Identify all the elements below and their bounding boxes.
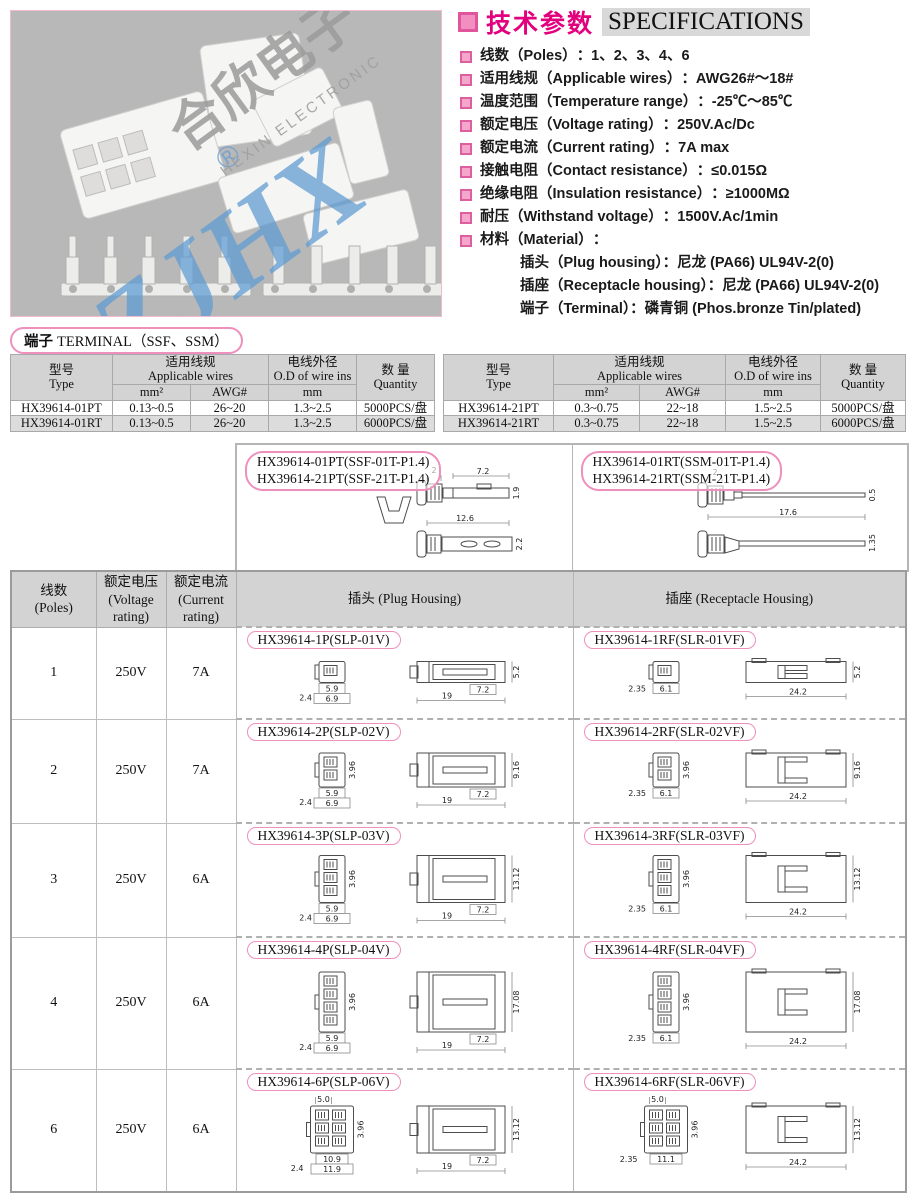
plug-technical-drawing: 5.96.92.43.967.21913.12 bbox=[237, 847, 569, 935]
receptacle-technical-drawing: 6.12.353.9624.29.16 bbox=[574, 743, 902, 821]
col-header-wires: 适用线规Applicable wires bbox=[113, 355, 269, 385]
receptacle-cell: HX39614-3RF(SLR-03VF)6.12.353.9624.213.1… bbox=[573, 823, 906, 937]
spec-item: 温度范围（Temperature range）：-25℃～85℃ bbox=[458, 92, 910, 113]
svg-text:6.9: 6.9 bbox=[325, 915, 338, 924]
spec-item-value: ：1500V.Ac/1min bbox=[663, 207, 779, 228]
specifications-list: 线数（Poles）：1、2、3、4、6适用线规（Applicable wires… bbox=[458, 46, 910, 320]
voltage-value: 250V bbox=[96, 937, 166, 1069]
terminal-cell: 1.3~2.5 bbox=[269, 400, 357, 415]
current-value: 6A bbox=[166, 937, 236, 1069]
terminal-drawings-box: HX39614-01PT(SSF-01T-P1.4) HX39614-21PT(… bbox=[235, 443, 909, 572]
svg-text:7.2: 7.2 bbox=[476, 686, 489, 695]
svg-text:2.35: 2.35 bbox=[628, 1034, 646, 1043]
spec-material-subline: 端子（Terminal）：磷青铜 (Phos.bronze Tin/plated… bbox=[458, 299, 910, 320]
svg-text:2.35: 2.35 bbox=[619, 1155, 637, 1164]
poles-value: 6 bbox=[11, 1069, 96, 1192]
spec-item: 额定电压（Voltage rating）：250V.Ac/Dc bbox=[458, 115, 910, 136]
svg-text:2.4: 2.4 bbox=[299, 914, 312, 923]
svg-text:1.9: 1.9 bbox=[512, 487, 521, 500]
spec-item-value: ：AWG26#～18# bbox=[681, 69, 793, 90]
receptacle-cell: HX39614-1RF(SLR-01VF)6.12.3524.25.2 bbox=[573, 627, 906, 719]
spec-material-subline: 插头（Plug housing）：尼龙 (PA66) UL94V-2(0) bbox=[458, 253, 910, 274]
receptacle-part-label: HX39614-4RF(SLR-04VF) bbox=[584, 941, 756, 959]
spec-item-value: ：7A max bbox=[664, 138, 730, 159]
spec-item-text: 绝缘电阻（Insulation resistance） bbox=[480, 184, 711, 205]
terminal-cell: HX39614-01RT bbox=[11, 416, 113, 431]
plug-part-label: HX39614-1P(SLP-01V) bbox=[247, 631, 401, 649]
svg-text:13.12: 13.12 bbox=[512, 868, 521, 891]
spec-item-value: ：-25℃～85℃ bbox=[697, 92, 792, 113]
terminal-table-right: 型号Type 适用线规Applicable wires 电线外径O.D of w… bbox=[443, 354, 906, 432]
svg-text:2.35: 2.35 bbox=[628, 905, 646, 914]
spec-item-text: 适用线规（Applicable wires） bbox=[480, 69, 681, 90]
poles-value: 1 bbox=[11, 627, 96, 719]
terminal-cell: HX39614-01PT bbox=[11, 400, 113, 415]
terminal-table-row: HX39614-01RT0.13~0.526~201.3~2.56000PCS/… bbox=[11, 416, 435, 431]
housing-table-row: 4250V6AHX39614-4P(SLP-04V)5.96.92.43.967… bbox=[11, 937, 906, 1069]
terminal-drawing-ssm: HX39614-01RT(SSM-01T-P1.4) HX39614-21RT(… bbox=[572, 445, 908, 572]
col-header-type: 型号Type bbox=[11, 355, 113, 401]
plug-cell: HX39614-6P(SLP-06V)10.911.92.43.965.07.2… bbox=[236, 1069, 573, 1192]
svg-text:24.2: 24.2 bbox=[789, 908, 807, 917]
svg-text:2.4: 2.4 bbox=[299, 798, 312, 807]
col-header-awg: AWG# bbox=[191, 384, 269, 400]
terminal-cell: 0.13~0.5 bbox=[113, 400, 191, 415]
spec-item-text: 温度范围（Temperature range） bbox=[480, 92, 697, 113]
header-receptacle: 插座 (Receptacle Housing) bbox=[573, 571, 906, 627]
svg-text:7.2: 7.2 bbox=[476, 790, 489, 799]
plug-cell: HX39614-1P(SLP-01V)5.96.92.47.2195.2 bbox=[236, 627, 573, 719]
receptacle-part-label: HX39614-3RF(SLR-03VF) bbox=[584, 827, 756, 845]
plug-technical-drawing: 10.911.92.43.965.07.21913.12 bbox=[237, 1093, 569, 1190]
svg-text:1.35: 1.35 bbox=[868, 534, 877, 552]
svg-text:7.2: 7.2 bbox=[476, 906, 489, 915]
svg-text:3.96: 3.96 bbox=[348, 761, 357, 779]
svg-text:6.1: 6.1 bbox=[659, 905, 672, 914]
spec-item: 线数（Poles）：1、2、3、4、6 bbox=[458, 46, 910, 67]
svg-text:3.96: 3.96 bbox=[682, 761, 691, 779]
svg-text:3.96: 3.96 bbox=[682, 870, 691, 888]
receptacle-technical-drawing: 6.12.353.9624.217.08 bbox=[574, 961, 902, 1067]
svg-text:2.4: 2.4 bbox=[299, 694, 312, 703]
svg-text:5.9: 5.9 bbox=[325, 1034, 338, 1043]
specifications-title-en: SPECIFICATIONS bbox=[602, 8, 810, 37]
terminal-label-en: TERMINAL（SSF、SSM） bbox=[57, 334, 229, 350]
svg-text:2.4: 2.4 bbox=[299, 1043, 312, 1052]
spec-item-value: ：≥1000MΩ bbox=[711, 184, 789, 205]
svg-text:3.96: 3.96 bbox=[348, 870, 357, 888]
terminal-cell: 0.3~0.75 bbox=[554, 400, 640, 415]
square-bullet-icon bbox=[460, 74, 472, 86]
voltage-value: 250V bbox=[96, 719, 166, 823]
receptacle-cell: HX39614-6RF(SLR-06VF)11.12.353.965.024.2… bbox=[573, 1069, 906, 1192]
plug-technical-drawing: 5.96.92.43.967.2199.16 bbox=[237, 743, 569, 821]
housing-table-row: 2250V7AHX39614-2P(SLP-02V)5.96.92.43.967… bbox=[11, 719, 906, 823]
plug-technical-drawing: 5.96.92.47.2195.2 bbox=[237, 651, 569, 717]
header-current: 额定电流(Current rating) bbox=[166, 571, 236, 627]
svg-text:7.2: 7.2 bbox=[477, 467, 490, 476]
svg-text:2.4: 2.4 bbox=[290, 1164, 303, 1173]
receptacle-part-label: HX39614-6RF(SLR-06VF) bbox=[584, 1073, 756, 1091]
plug-cell: HX39614-4P(SLP-04V)5.96.92.43.967.21917.… bbox=[236, 937, 573, 1069]
housing-table-row: 6250V6AHX39614-6P(SLP-06V)10.911.92.43.9… bbox=[11, 1069, 906, 1192]
svg-text:5.9: 5.9 bbox=[325, 685, 338, 694]
current-value: 6A bbox=[166, 823, 236, 937]
col-header-mm2: mm² bbox=[113, 384, 191, 400]
square-bullet-icon bbox=[460, 143, 472, 155]
receptacle-cell: HX39614-4RF(SLR-04VF)6.12.353.9624.217.0… bbox=[573, 937, 906, 1069]
square-bullet-icon bbox=[460, 97, 472, 109]
terminal-cell: HX39614-21PT bbox=[444, 400, 554, 415]
svg-text:17.08: 17.08 bbox=[853, 991, 862, 1014]
terminal-table-row: HX39614-21PT0.3~0.7522~181.5~2.55000PCS/… bbox=[444, 400, 906, 415]
part-label-ssm: HX39614-01RT(SSM-01T-P1.4) HX39614-21RT(… bbox=[581, 451, 783, 491]
receptacle-technical-drawing: 6.12.353.9624.213.12 bbox=[574, 847, 902, 935]
svg-text:3.96: 3.96 bbox=[682, 993, 691, 1011]
terminal-cell: 26~20 bbox=[191, 400, 269, 415]
svg-text:6.9: 6.9 bbox=[325, 1044, 338, 1053]
svg-text:9.16: 9.16 bbox=[512, 761, 521, 779]
product-photo-illustration: ZJHX ® 合欣电子 HEXIN ELECTRONIC bbox=[11, 11, 441, 316]
receptacle-technical-drawing: 6.12.3524.25.2 bbox=[574, 651, 902, 717]
terminal-table-row: HX39614-01PT0.13~0.526~201.3~2.55000PCS/… bbox=[11, 400, 435, 415]
svg-text:19: 19 bbox=[441, 1162, 451, 1171]
spec-subline-text: 端子（Terminal）：磷青铜 (Phos.bronze Tin/plated… bbox=[520, 299, 861, 320]
svg-text:13.12: 13.12 bbox=[853, 868, 862, 891]
col-header-mm2: mm² bbox=[554, 384, 640, 400]
svg-text:3.96: 3.96 bbox=[690, 1121, 699, 1139]
col-header-awg: AWG# bbox=[640, 384, 726, 400]
svg-text:24.2: 24.2 bbox=[789, 1037, 807, 1046]
spec-item-value: ： bbox=[593, 230, 608, 251]
square-bullet-icon bbox=[460, 189, 472, 201]
terminal-cell: 0.13~0.5 bbox=[113, 416, 191, 431]
terminal-cell: 1.5~2.5 bbox=[726, 400, 821, 415]
plug-part-label: HX39614-4P(SLP-04V) bbox=[247, 941, 401, 959]
plug-cell: HX39614-2P(SLP-02V)5.96.92.43.967.2199.1… bbox=[236, 719, 573, 823]
svg-text:7.2: 7.2 bbox=[476, 1035, 489, 1044]
spec-item: 耐压（Withstand voltage）：1500V.Ac/1min bbox=[458, 207, 910, 228]
title-square-icon bbox=[458, 12, 478, 32]
current-value: 6A bbox=[166, 1069, 236, 1192]
svg-text:10.9: 10.9 bbox=[323, 1155, 341, 1164]
svg-text:5.9: 5.9 bbox=[325, 789, 338, 798]
svg-text:6.9: 6.9 bbox=[325, 695, 338, 704]
svg-text:13.12: 13.12 bbox=[853, 1118, 862, 1141]
spec-subline-text: 插座（Receptacle housing）：尼龙 (PA66) UL94V-2… bbox=[520, 276, 879, 297]
header-poles: 线数(Poles) bbox=[11, 571, 96, 627]
poles-value: 4 bbox=[11, 937, 96, 1069]
svg-text:11.1: 11.1 bbox=[657, 1155, 675, 1164]
col-header-od: 电线外径O.D of wire ins bbox=[269, 355, 357, 385]
plug-part-label: HX39614-3P(SLP-03V) bbox=[247, 827, 401, 845]
datasheet-page: ZJHX ® 合欣电子 HEXIN ELECTRONIC 技术参数 SPECIF… bbox=[0, 0, 915, 1194]
spec-item-value: ：1、2、3、4、6 bbox=[577, 46, 690, 67]
svg-text:24.2: 24.2 bbox=[789, 1158, 807, 1167]
svg-text:6.1: 6.1 bbox=[659, 1034, 672, 1043]
header-voltage: 额定电压(Voltage rating) bbox=[96, 571, 166, 627]
svg-text:5.9: 5.9 bbox=[325, 905, 338, 914]
receptacle-cell: HX39614-2RF(SLR-02VF)6.12.353.9624.29.16 bbox=[573, 719, 906, 823]
spec-item-text: 耐压（Withstand voltage） bbox=[480, 207, 663, 228]
col-header-type: 型号Type bbox=[444, 355, 554, 401]
svg-text:17.6: 17.6 bbox=[779, 508, 797, 517]
svg-text:9.16: 9.16 bbox=[853, 761, 862, 779]
product-photo: ZJHX ® 合欣电子 HEXIN ELECTRONIC bbox=[10, 10, 442, 317]
svg-text:5.0: 5.0 bbox=[651, 1095, 664, 1104]
receptacle-technical-drawing: 11.12.353.965.024.213.12 bbox=[574, 1093, 902, 1190]
svg-text:6.1: 6.1 bbox=[659, 789, 672, 798]
spec-subline-text: 插头（Plug housing）：尼龙 (PA66) UL94V-2(0) bbox=[520, 253, 834, 274]
square-bullet-icon bbox=[460, 235, 472, 247]
terminal-section-label: 端子 TERMINAL（SSF、SSM） bbox=[10, 327, 243, 354]
receptacle-part-label: HX39614-1RF(SLR-01VF) bbox=[584, 631, 756, 649]
plug-cell: HX39614-3P(SLP-03V)5.96.92.43.967.21913.… bbox=[236, 823, 573, 937]
terminal-table-left: 型号Type 适用线规Applicable wires 电线外径O.D of w… bbox=[10, 354, 435, 432]
spec-item: 额定电流（Current rating）：7A max bbox=[458, 138, 910, 159]
terminal-cell: 26~20 bbox=[191, 416, 269, 431]
terminal-drawing-ssf: HX39614-01PT(SSF-01T-P1.4) HX39614-21PT(… bbox=[237, 445, 572, 572]
terminal-table-row: HX39614-21RT0.3~0.7522~181.5~2.56000PCS/… bbox=[444, 416, 906, 431]
spec-item-text: 接触电阻（Contact resistance） bbox=[480, 161, 697, 182]
terminal-cell: 22~18 bbox=[640, 400, 726, 415]
col-header-od-unit: mm bbox=[726, 384, 821, 400]
square-bullet-icon bbox=[460, 120, 472, 132]
terminal-cell: 0.3~0.75 bbox=[554, 416, 640, 431]
svg-text:12.6: 12.6 bbox=[456, 514, 474, 523]
plug-part-label: HX39614-6P(SLP-06V) bbox=[247, 1073, 401, 1091]
spec-item-text: 材料（Material） bbox=[480, 230, 593, 251]
spec-item: 绝缘电阻（Insulation resistance）：≥1000MΩ bbox=[458, 184, 910, 205]
housing-table-row: 1250V7AHX39614-1P(SLP-01V)5.96.92.47.219… bbox=[11, 627, 906, 719]
svg-text:11.9: 11.9 bbox=[323, 1165, 341, 1174]
terminal-cell: 6000PCS/盘 bbox=[357, 416, 435, 431]
svg-text:19: 19 bbox=[441, 692, 451, 701]
terminal-cell: 6000PCS/盘 bbox=[821, 416, 906, 431]
col-header-od: 电线外径O.D of wire ins bbox=[726, 355, 821, 385]
voltage-value: 250V bbox=[96, 627, 166, 719]
square-bullet-icon bbox=[460, 166, 472, 178]
spec-item: 接触电阻（Contact resistance）：≤0.015Ω bbox=[458, 161, 910, 182]
svg-text:5.2: 5.2 bbox=[853, 666, 862, 679]
spec-item-text: 额定电压（Voltage rating） bbox=[480, 115, 663, 136]
svg-text:2.2: 2.2 bbox=[515, 538, 524, 551]
terminal-cell: 22~18 bbox=[640, 416, 726, 431]
poles-value: 3 bbox=[11, 823, 96, 937]
specifications-section: 技术参数 SPECIFICATIONS 线数（Poles）：1、2、3、4、6适… bbox=[458, 4, 910, 322]
svg-text:19: 19 bbox=[441, 796, 451, 805]
svg-text:19: 19 bbox=[441, 1041, 451, 1050]
spec-item-value: ：≤0.015Ω bbox=[697, 161, 767, 182]
square-bullet-icon bbox=[460, 212, 472, 224]
header-plug: 插头 (Plug Housing) bbox=[236, 571, 573, 627]
voltage-value: 250V bbox=[96, 1069, 166, 1192]
current-value: 7A bbox=[166, 719, 236, 823]
svg-text:19: 19 bbox=[441, 912, 451, 921]
terminal-cell: 1.3~2.5 bbox=[269, 416, 357, 431]
svg-text:2.35: 2.35 bbox=[628, 789, 646, 798]
housing-table: 线数(Poles) 额定电压(Voltage rating) 额定电流(Curr… bbox=[10, 570, 907, 1193]
col-header-od-unit: mm bbox=[269, 384, 357, 400]
terminal-cell: 1.5~2.5 bbox=[726, 416, 821, 431]
svg-text:3.96: 3.96 bbox=[348, 993, 357, 1011]
housing-table-row: 3250V6AHX39614-3P(SLP-03V)5.96.92.43.967… bbox=[11, 823, 906, 937]
svg-text:0.5: 0.5 bbox=[868, 489, 877, 502]
part-label-ssf: HX39614-01PT(SSF-01T-P1.4) HX39614-21PT(… bbox=[245, 451, 441, 491]
col-header-wires: 适用线规Applicable wires bbox=[554, 355, 726, 385]
terminal-cell: 5000PCS/盘 bbox=[357, 400, 435, 415]
terminal-label-cn: 端子 bbox=[24, 334, 53, 350]
specifications-title-cn: 技术参数 bbox=[486, 4, 594, 40]
square-bullet-icon bbox=[460, 51, 472, 63]
col-header-qty: 数 量Quantity bbox=[821, 355, 906, 401]
receptacle-part-label: HX39614-2RF(SLR-02VF) bbox=[584, 723, 756, 741]
spec-item-text: 额定电流（Current rating） bbox=[480, 138, 664, 159]
svg-text:24.2: 24.2 bbox=[789, 688, 807, 697]
svg-text:6.9: 6.9 bbox=[325, 799, 338, 808]
spec-item-text: 线数（Poles） bbox=[480, 46, 577, 67]
col-header-qty: 数 量Quantity bbox=[357, 355, 435, 401]
svg-text:24.2: 24.2 bbox=[789, 792, 807, 801]
plug-technical-drawing: 5.96.92.43.967.21917.08 bbox=[237, 961, 569, 1067]
specifications-title: 技术参数 SPECIFICATIONS bbox=[458, 4, 910, 40]
terminal-cell: 5000PCS/盘 bbox=[821, 400, 906, 415]
svg-text:5.2: 5.2 bbox=[512, 666, 521, 679]
spec-item-value: ：250V.Ac/Dc bbox=[663, 115, 755, 136]
svg-text:6.1: 6.1 bbox=[659, 685, 672, 694]
svg-text:7.2: 7.2 bbox=[476, 1156, 489, 1165]
svg-text:17.08: 17.08 bbox=[512, 991, 521, 1014]
current-value: 7A bbox=[166, 627, 236, 719]
terminal-cell: HX39614-21RT bbox=[444, 416, 554, 431]
svg-text:5.0: 5.0 bbox=[317, 1095, 330, 1104]
spec-material-subline: 插座（Receptacle housing）：尼龙 (PA66) UL94V-2… bbox=[458, 276, 910, 297]
spec-item: 适用线规（Applicable wires）：AWG26#～18# bbox=[458, 69, 910, 90]
svg-text:13.12: 13.12 bbox=[512, 1118, 521, 1141]
voltage-value: 250V bbox=[96, 823, 166, 937]
poles-value: 2 bbox=[11, 719, 96, 823]
svg-text:3.96: 3.96 bbox=[356, 1121, 365, 1139]
svg-text:2.35: 2.35 bbox=[628, 685, 646, 694]
spec-item: 材料（Material）： bbox=[458, 230, 910, 251]
plug-part-label: HX39614-2P(SLP-02V) bbox=[247, 723, 401, 741]
